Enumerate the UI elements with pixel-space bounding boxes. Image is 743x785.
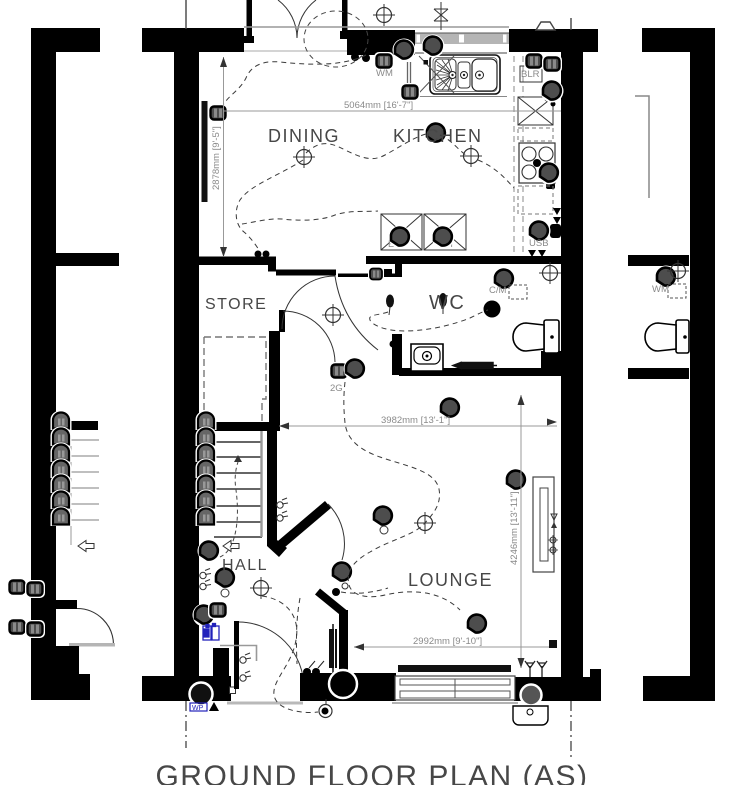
svg-text:WP: WP (192, 705, 204, 712)
svg-text:KITCHEN: KITCHEN (393, 126, 483, 146)
svg-text:GROUND FLOOR PLAN (AS): GROUND FLOOR PLAN (AS) (155, 760, 588, 785)
svg-text:C/M: C/M (489, 285, 507, 296)
svg-text:DINING: DINING (268, 126, 340, 146)
svg-text:USB: USB (529, 238, 549, 249)
svg-text:5064mm [16'-7"]: 5064mm [16'-7"] (344, 100, 413, 111)
svg-text:HALL: HALL (222, 557, 268, 574)
svg-text:WM: WM (652, 284, 669, 295)
svg-text:4246mm [13'-11"]: 4246mm [13'-11"] (509, 491, 520, 565)
svg-text:2G: 2G (330, 383, 343, 394)
svg-text:3982mm [13'-1"]: 3982mm [13'-1"] (381, 415, 450, 426)
svg-text:BLR: BLR (521, 69, 540, 80)
svg-text:2992mm [9'-10"]: 2992mm [9'-10"] (413, 636, 482, 647)
svg-text:WC: WC (429, 292, 465, 314)
svg-text:STORE: STORE (205, 296, 267, 313)
svg-text:WM: WM (376, 68, 393, 79)
svg-text:LOUNGE: LOUNGE (408, 570, 493, 590)
svg-text:2878mm [9'-5"]: 2878mm [9'-5"] (211, 126, 222, 190)
